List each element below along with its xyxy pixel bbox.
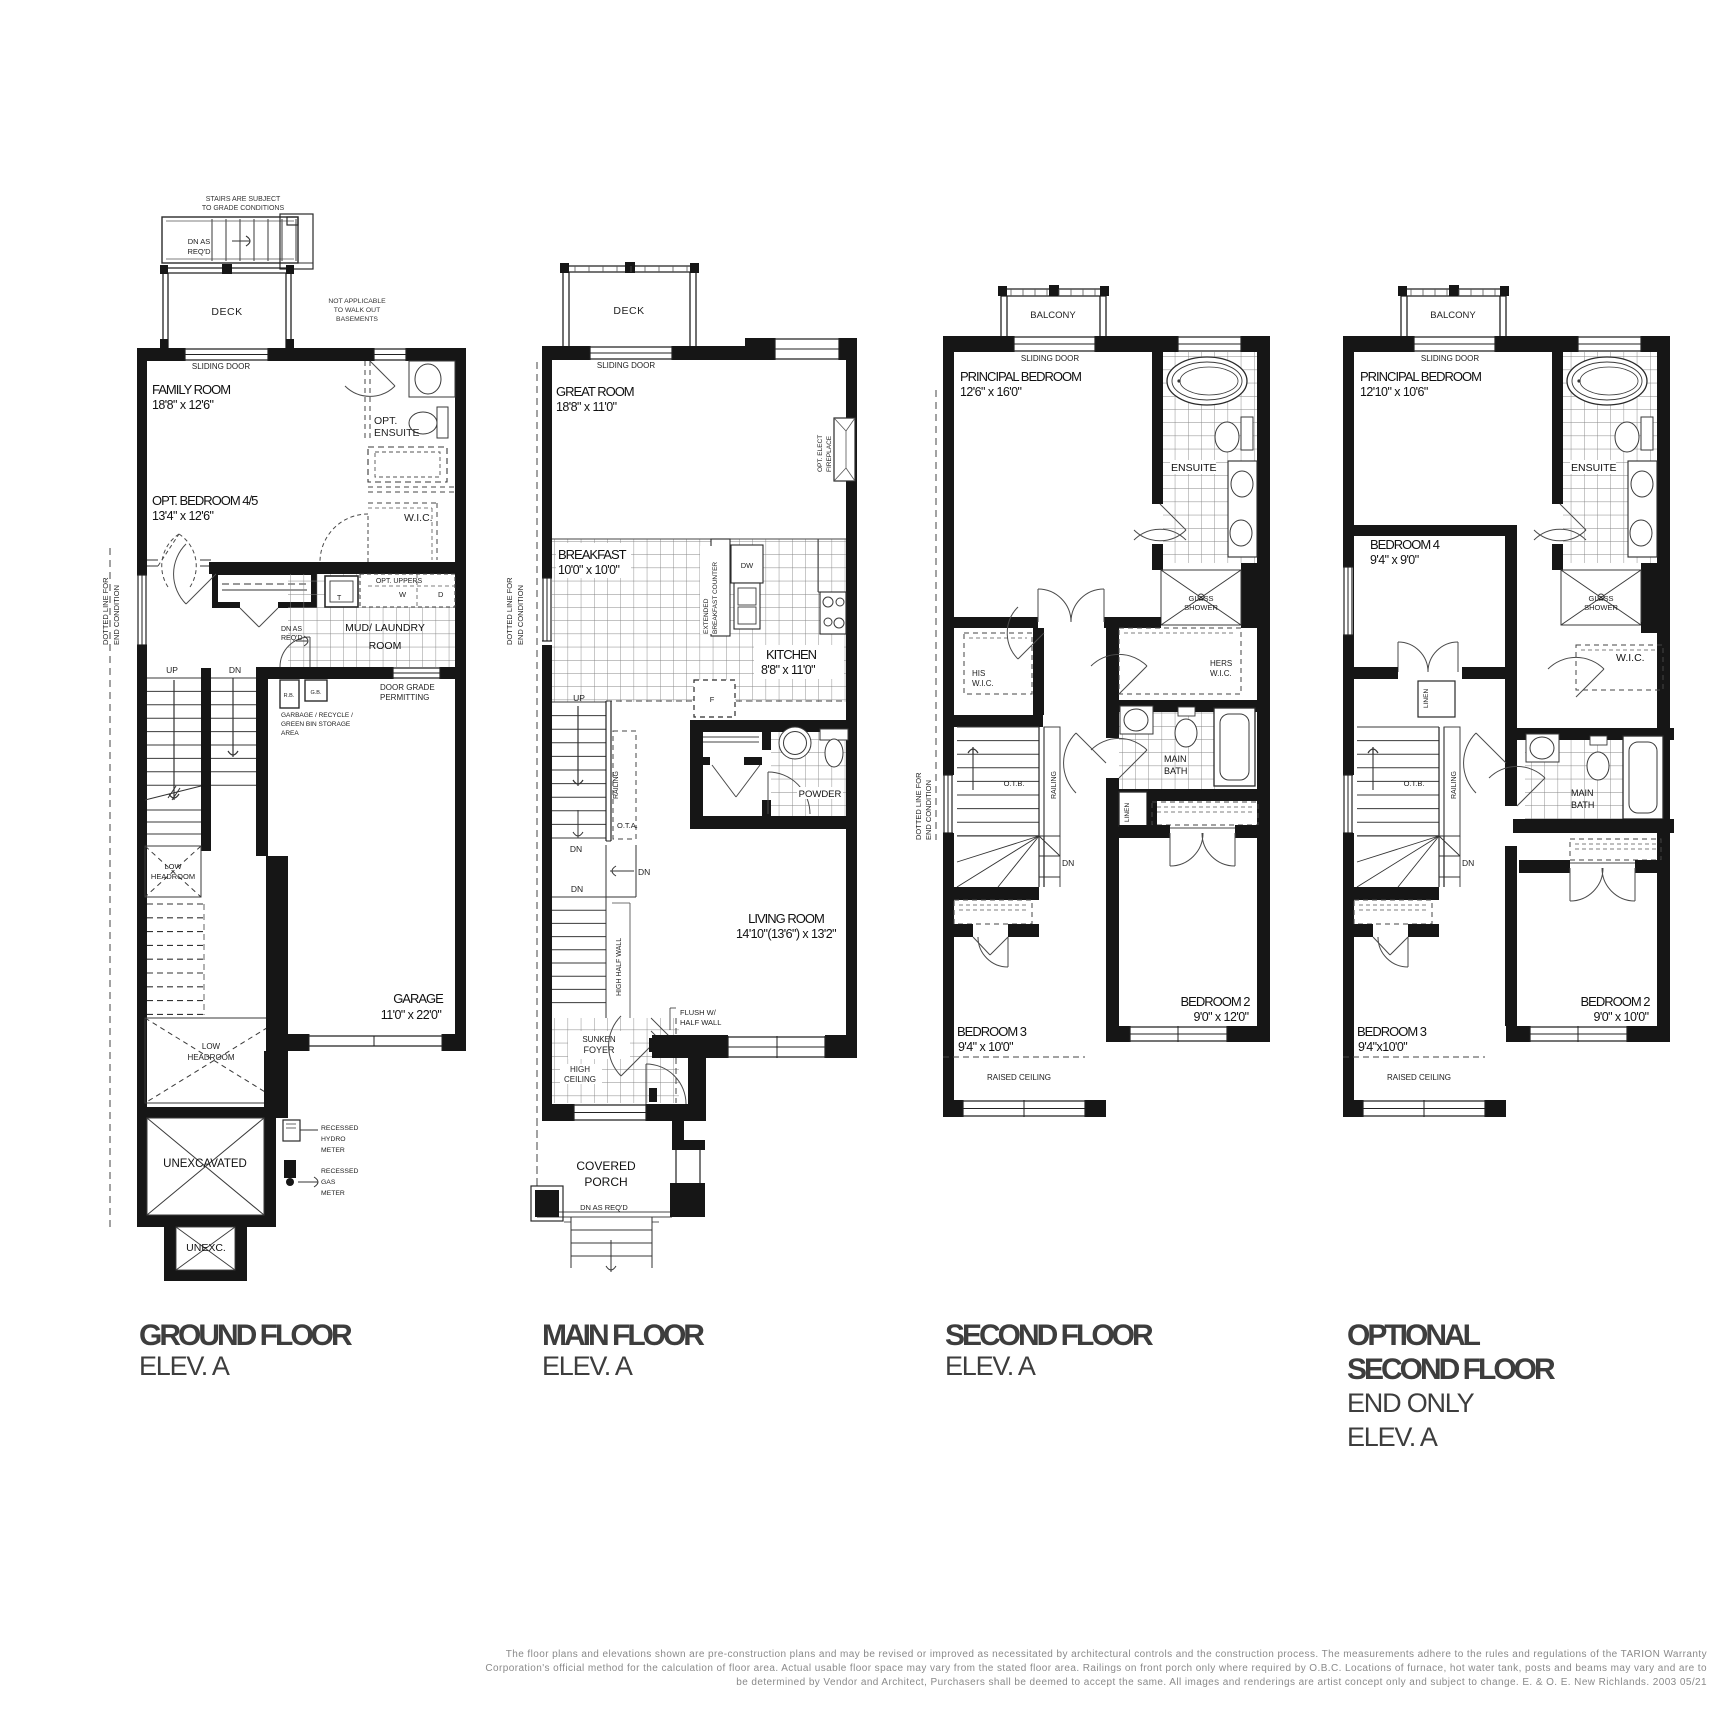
svg-text:DOOR GRADE: DOOR GRADE: [380, 683, 435, 692]
svg-text:10'0" x 10'0": 10'0" x 10'0": [558, 563, 620, 577]
svg-text:ELEV. A: ELEV. A: [139, 1351, 230, 1381]
svg-text:GREEN BIN STORAGE: GREEN BIN STORAGE: [281, 721, 351, 728]
svg-text:HERS: HERS: [1210, 659, 1232, 668]
svg-text:FOYER: FOYER: [583, 1045, 615, 1055]
svg-text:DN: DN: [638, 867, 650, 877]
svg-text:BREAKFAST: BREAKFAST: [558, 547, 627, 562]
svg-text:9'0" x 12'0": 9'0" x 12'0": [1193, 1010, 1248, 1024]
svg-text:T: T: [337, 595, 342, 602]
svg-text:11'0" x 22'0": 11'0" x 22'0": [381, 1008, 442, 1022]
svg-text:OPTIONAL: OPTIONAL: [1347, 1319, 1481, 1352]
svg-text:BATH: BATH: [1164, 766, 1187, 776]
svg-text:OPT. BEDROOM 4/5: OPT. BEDROOM 4/5: [152, 493, 258, 508]
svg-text:LINEN: LINEN: [1423, 689, 1430, 708]
svg-text:MUD/ LAUNDRY: MUD/ LAUNDRY: [345, 622, 425, 634]
svg-text:FLUSH W/: FLUSH W/: [680, 1008, 717, 1017]
svg-text:MAIN: MAIN: [1164, 754, 1187, 764]
svg-text:PORCH: PORCH: [584, 1175, 627, 1189]
svg-text:BASEMENTS: BASEMENTS: [336, 316, 378, 323]
svg-text:BEDROOM 4: BEDROOM 4: [1370, 537, 1440, 552]
svg-text:END ONLY: END ONLY: [1347, 1388, 1475, 1418]
svg-text:LIVING ROOM: LIVING ROOM: [748, 911, 824, 926]
svg-text:LINEN: LINEN: [1124, 803, 1131, 822]
svg-text:9'4" x 10'0": 9'4" x 10'0": [958, 1040, 1013, 1054]
svg-text:ELEV. A: ELEV. A: [945, 1351, 1036, 1381]
svg-text:UNEXCAVATED: UNEXCAVATED: [163, 1158, 247, 1170]
svg-text:EXTENDED: EXTENDED: [703, 598, 710, 634]
svg-text:O.T.B.: O.T.B.: [1404, 779, 1425, 788]
svg-text:F: F: [710, 695, 715, 704]
svg-text:HYDRO: HYDRO: [321, 1136, 346, 1143]
svg-text:NOT APPLICABLE: NOT APPLICABLE: [328, 298, 386, 305]
svg-text:FAMILY ROOM: FAMILY ROOM: [152, 382, 230, 397]
svg-text:UP: UP: [166, 665, 178, 675]
svg-text:DOTTED LINE FOR: DOTTED LINE FOR: [914, 772, 923, 840]
svg-text:END CONDITION: END CONDITION: [924, 780, 933, 840]
svg-text:RAILING: RAILING: [1051, 771, 1058, 799]
svg-text:8'8" x 11'0": 8'8" x 11'0": [761, 663, 815, 677]
svg-text:13'4" x 12'6": 13'4" x 12'6": [152, 509, 214, 523]
svg-text:Corporation's official method: Corporation's official method for the ca…: [485, 1663, 1707, 1674]
svg-text:18'8" x 11'0": 18'8" x 11'0": [556, 400, 617, 414]
svg-text:DOTTED LINE FOR: DOTTED LINE FOR: [101, 577, 110, 645]
svg-text:W.I.C.: W.I.C.: [1616, 652, 1645, 664]
svg-text:12'6" x 16'0": 12'6" x 16'0": [960, 385, 1022, 399]
svg-text:DN AS: DN AS: [188, 237, 211, 246]
svg-text:HEADROOM: HEADROOM: [187, 1053, 234, 1062]
svg-text:GREAT ROOM: GREAT ROOM: [556, 384, 634, 399]
svg-text:ROOM: ROOM: [369, 640, 402, 652]
svg-text:SHOWER: SHOWER: [1584, 603, 1618, 612]
svg-text:PRINCIPAL BEDROOM: PRINCIPAL BEDROOM: [1360, 369, 1481, 384]
svg-text:18'8" x 12'6": 18'8" x 12'6": [152, 398, 214, 412]
svg-text:GARBAGE / RECYCLE /: GARBAGE / RECYCLE /: [281, 712, 353, 719]
svg-text:RAILING: RAILING: [1451, 771, 1458, 799]
svg-text:W: W: [399, 590, 407, 599]
svg-text:LOW: LOW: [202, 1042, 221, 1051]
svg-text:DN: DN: [571, 884, 583, 894]
svg-text:GARAGE: GARAGE: [393, 991, 444, 1006]
svg-text:ENSUITE: ENSUITE: [374, 427, 420, 439]
svg-text:G.B.: G.B.: [310, 690, 321, 696]
svg-text:D: D: [438, 590, 444, 599]
svg-text:LOW: LOW: [164, 862, 182, 871]
svg-text:SLIDING DOOR: SLIDING DOOR: [1021, 354, 1079, 363]
svg-text:MAIN: MAIN: [1571, 788, 1594, 798]
svg-text:MAIN FLOOR: MAIN FLOOR: [542, 1319, 705, 1352]
svg-text:SECOND FLOOR: SECOND FLOOR: [945, 1319, 1154, 1352]
svg-text:FIREPLACE: FIREPLACE: [826, 435, 833, 472]
svg-text:METER: METER: [321, 1147, 345, 1154]
svg-text:SLIDING DOOR: SLIDING DOOR: [192, 362, 250, 371]
svg-text:DN AS: DN AS: [281, 626, 302, 633]
svg-text:9'4" x 9'0": 9'4" x 9'0": [1370, 553, 1419, 567]
svg-text:BEDROOM 2: BEDROOM 2: [1180, 994, 1250, 1009]
svg-text:SECOND FLOOR: SECOND FLOOR: [1347, 1353, 1556, 1386]
svg-text:RAILING: RAILING: [613, 771, 620, 799]
svg-text:METER: METER: [321, 1190, 345, 1197]
svg-text:DW: DW: [741, 561, 754, 570]
svg-text:DECK: DECK: [613, 305, 644, 317]
svg-text:HIGH HALF WALL: HIGH HALF WALL: [616, 938, 623, 996]
svg-text:PERMITTING: PERMITTING: [380, 693, 429, 702]
svg-text:SLIDING DOOR: SLIDING DOOR: [597, 361, 655, 370]
svg-text:BALCONY: BALCONY: [1030, 310, 1076, 321]
svg-text:DECK: DECK: [211, 306, 242, 318]
svg-text:RAISED CEILING: RAISED CEILING: [1387, 1073, 1451, 1082]
svg-text:O.T.B.: O.T.B.: [1004, 779, 1025, 788]
svg-text:CEILING: CEILING: [564, 1075, 596, 1084]
svg-text:GROUND FLOOR: GROUND FLOOR: [139, 1319, 353, 1352]
svg-text:DN AS REQ'D: DN AS REQ'D: [580, 1203, 628, 1212]
svg-text:DN: DN: [1062, 858, 1074, 868]
svg-text:BEDROOM 3: BEDROOM 3: [957, 1024, 1027, 1039]
svg-text:GLASS: GLASS: [1188, 594, 1213, 603]
svg-text:OPT. UPPERS: OPT. UPPERS: [376, 578, 423, 585]
svg-text:HIGH: HIGH: [570, 1065, 590, 1074]
svg-text:The floor plans and elevations: The floor plans and elevations shown are…: [506, 1649, 1707, 1660]
svg-text:OPT.: OPT.: [374, 415, 397, 427]
svg-text:ELEV. A: ELEV. A: [542, 1351, 633, 1381]
svg-text:END CONDITION: END CONDITION: [112, 585, 121, 645]
svg-text:REQ'D: REQ'D: [187, 247, 211, 256]
svg-text:RECESSED: RECESSED: [321, 1168, 358, 1175]
svg-text:DN: DN: [1462, 858, 1474, 868]
svg-text:12'10" x 10'6": 12'10" x 10'6": [1360, 385, 1428, 399]
svg-text:SUNKEN: SUNKEN: [582, 1035, 616, 1044]
svg-text:UNEXC.: UNEXC.: [186, 1242, 226, 1254]
svg-text:ELEV. A: ELEV. A: [1347, 1422, 1438, 1452]
svg-text:BREAKFAST COUNTER: BREAKFAST COUNTER: [712, 562, 719, 634]
svg-text:be determined by Vendor and Ar: be determined by Vendor and Architect, P…: [736, 1677, 1707, 1688]
svg-text:DN: DN: [229, 665, 241, 675]
svg-text:PRINCIPAL BEDROOM: PRINCIPAL BEDROOM: [960, 369, 1081, 384]
svg-text:TO GRADE CONDITIONS: TO GRADE CONDITIONS: [202, 205, 285, 212]
svg-text:STAIRS ARE SUBJECT: STAIRS ARE SUBJECT: [206, 196, 281, 203]
svg-text:GLASS: GLASS: [1588, 594, 1613, 603]
svg-text:AREA: AREA: [281, 730, 299, 737]
svg-text:POWDER: POWDER: [799, 789, 842, 800]
svg-text:BALCONY: BALCONY: [1430, 310, 1476, 321]
svg-text:RAISED CEILING: RAISED CEILING: [987, 1073, 1051, 1082]
svg-text:COVERED: COVERED: [576, 1159, 636, 1173]
svg-text:W.I.C.: W.I.C.: [972, 679, 994, 688]
svg-text:W.I.C.: W.I.C.: [404, 512, 433, 524]
svg-text:SHOWER: SHOWER: [1184, 603, 1218, 612]
svg-text:O.T.A.: O.T.A.: [617, 821, 638, 830]
svg-text:END CONDITION: END CONDITION: [516, 585, 525, 645]
svg-text:9'4"x10'0": 9'4"x10'0": [1358, 1040, 1407, 1054]
svg-text:HALF WALL: HALF WALL: [680, 1018, 721, 1027]
svg-text:R.B.: R.B.: [284, 693, 295, 699]
svg-text:TO WALK OUT: TO WALK OUT: [334, 307, 380, 314]
svg-text:W.I.C.: W.I.C.: [1210, 669, 1232, 678]
svg-text:KITCHEN: KITCHEN: [766, 647, 817, 662]
svg-text:DOTTED LINE FOR: DOTTED LINE FOR: [505, 577, 514, 645]
svg-text:DN: DN: [570, 844, 582, 854]
svg-text:BEDROOM 3: BEDROOM 3: [1357, 1024, 1427, 1039]
svg-text:RECESSED: RECESSED: [321, 1125, 358, 1132]
svg-text:HEADROOM: HEADROOM: [151, 872, 195, 881]
svg-text:BATH: BATH: [1571, 800, 1594, 810]
svg-text:HIS: HIS: [972, 669, 985, 678]
svg-text:ENSUITE: ENSUITE: [1171, 462, 1217, 474]
svg-text:ENSUITE: ENSUITE: [1571, 462, 1617, 474]
svg-text:9'0" x 10'0": 9'0" x 10'0": [1593, 1010, 1648, 1024]
svg-text:GAS: GAS: [321, 1179, 336, 1186]
svg-text:OPT. ELECT: OPT. ELECT: [817, 435, 824, 472]
svg-text:14'10"(13'6") x 13'2": 14'10"(13'6") x 13'2": [736, 927, 836, 941]
svg-text:BEDROOM 2: BEDROOM 2: [1580, 994, 1650, 1009]
svg-text:SLIDING DOOR: SLIDING DOOR: [1421, 354, 1479, 363]
